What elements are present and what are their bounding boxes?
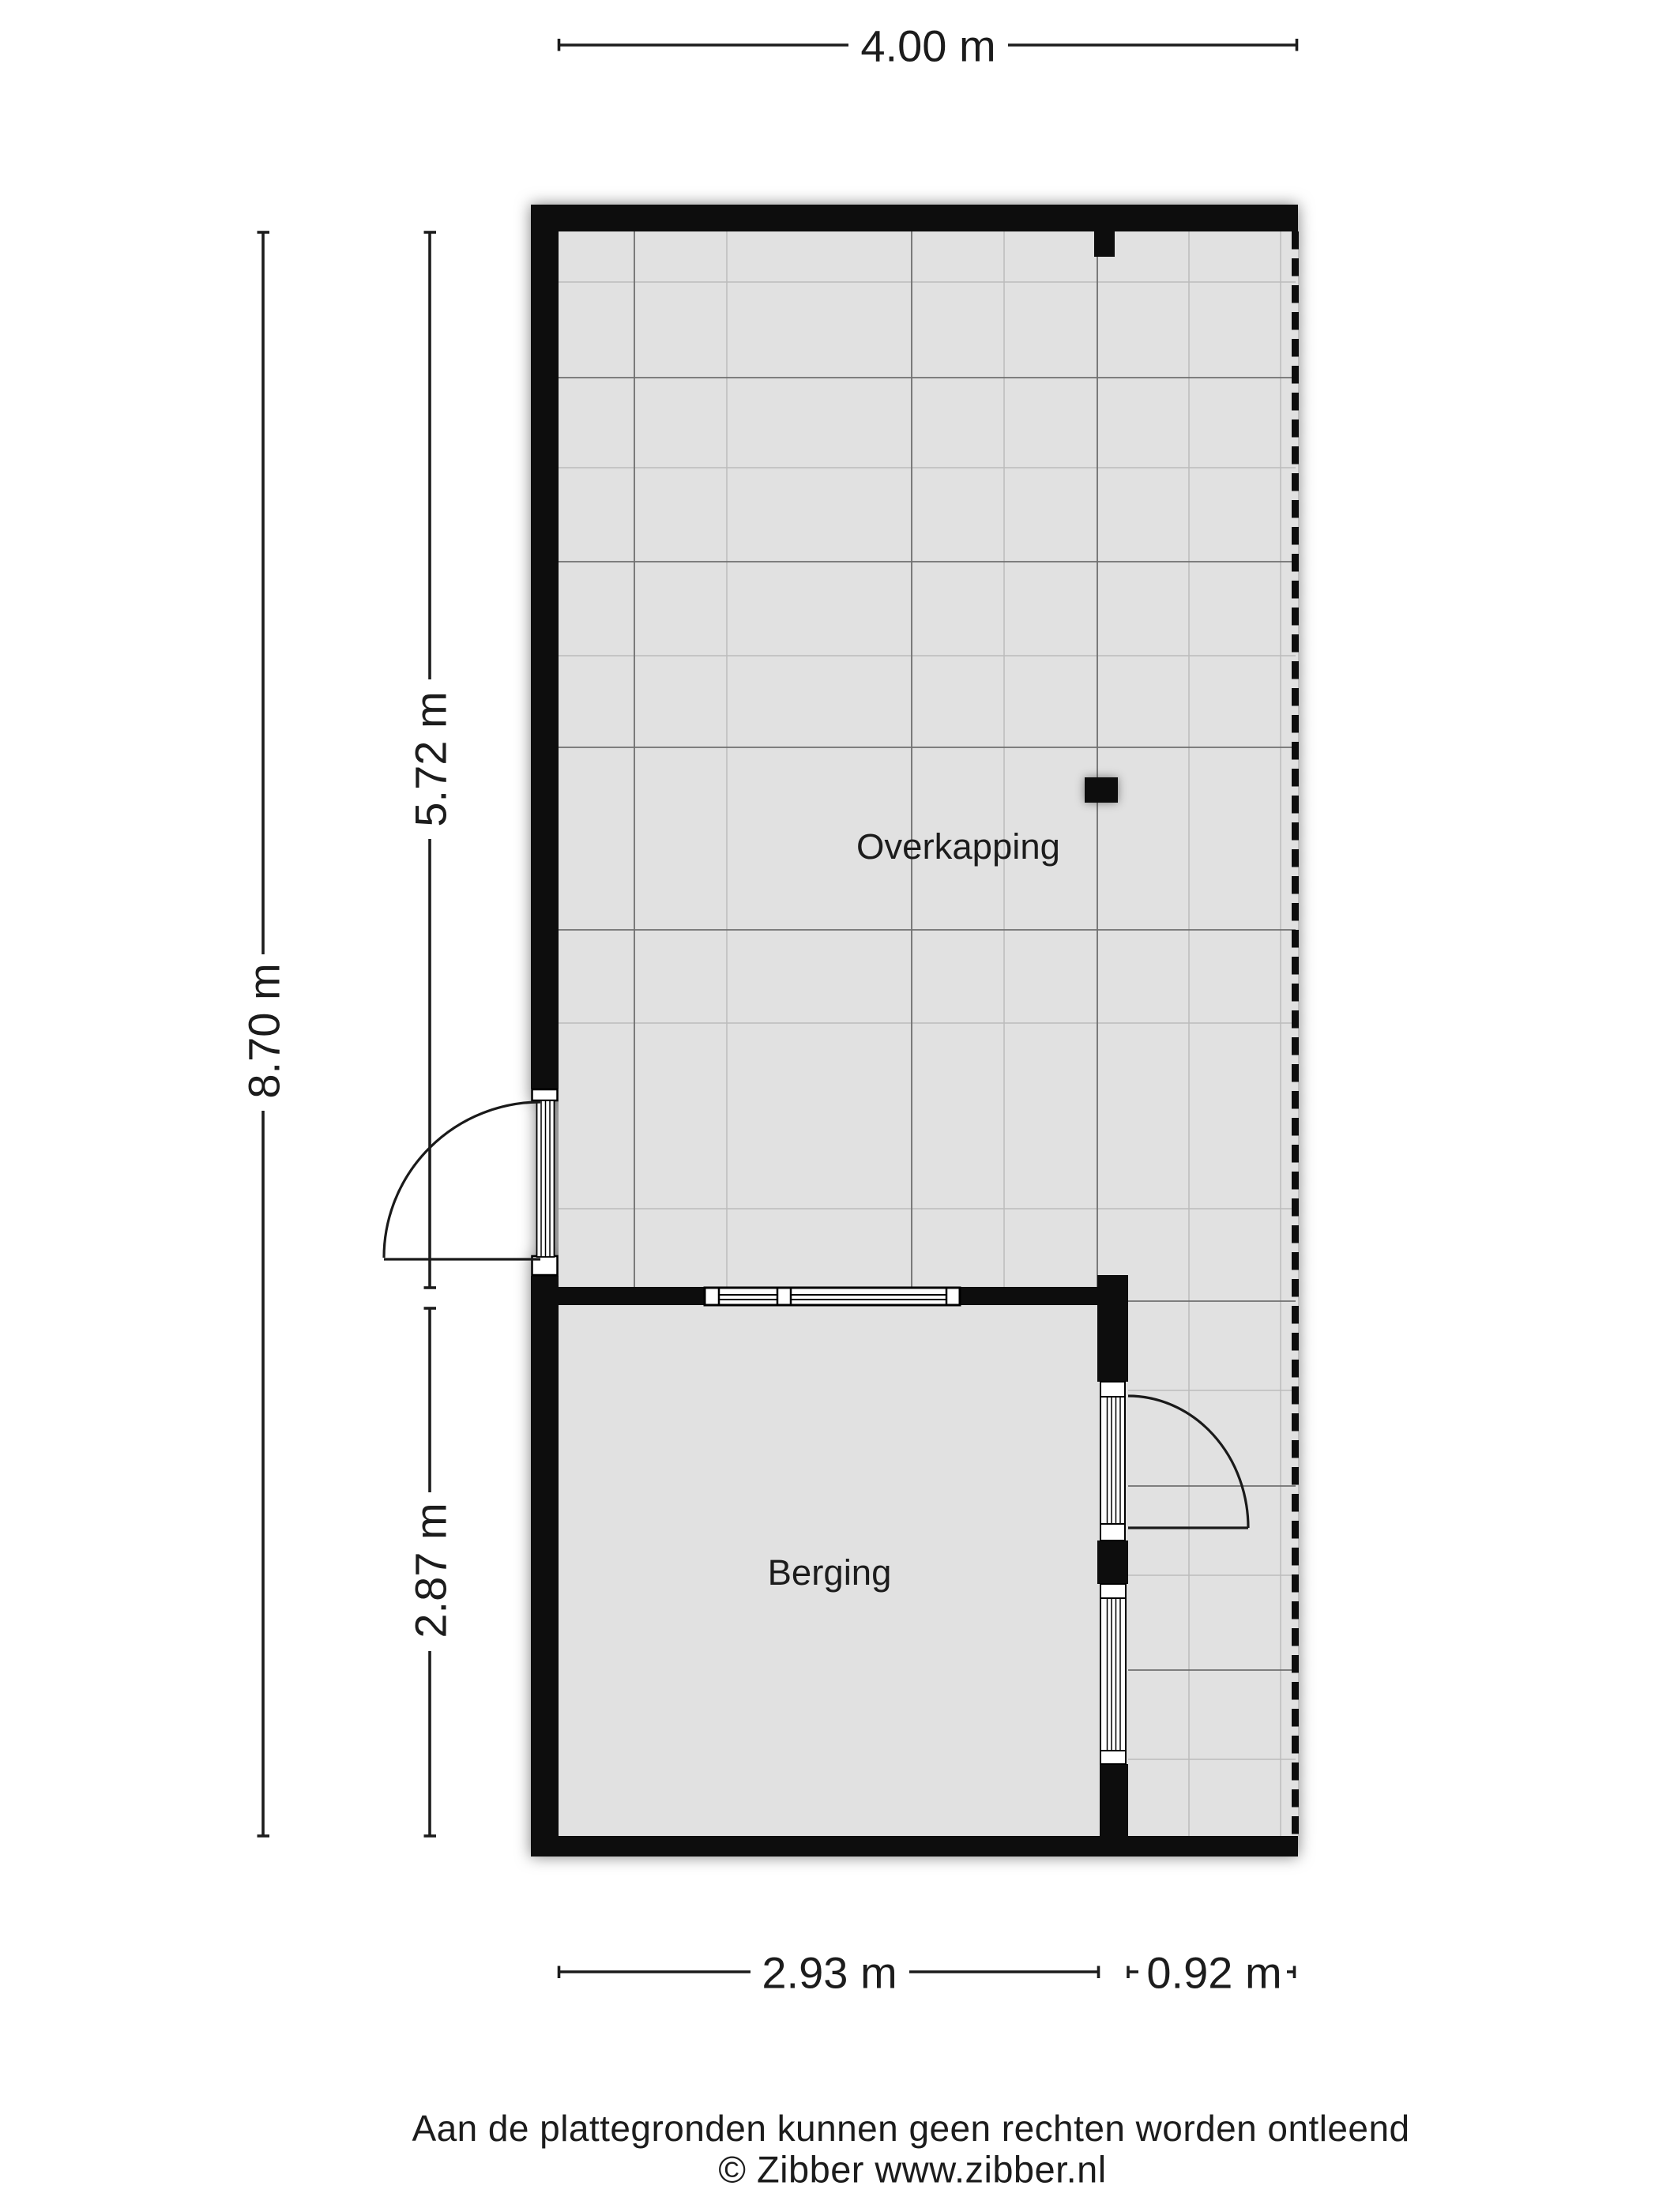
svg-text:0.92 m: 0.92 m [1146,1948,1281,1998]
svg-text:Overkapping: Overkapping [856,826,1060,867]
svg-text:Aan de plattegronden kunnen ge: Aan de plattegronden kunnen geen rechten… [412,2108,1409,2149]
svg-text:2.87 m: 2.87 m [406,1503,456,1638]
svg-text:Berging: Berging [768,1552,892,1593]
svg-text:5.72 m: 5.72 m [406,691,456,826]
svg-text:8.70 m: 8.70 m [239,963,289,1098]
svg-text:© Zibber www.zibber.nl: © Zibber www.zibber.nl [718,2149,1106,2191]
svg-text:4.00 m: 4.00 m [860,21,995,71]
svg-text:2.93 m: 2.93 m [762,1948,897,1998]
